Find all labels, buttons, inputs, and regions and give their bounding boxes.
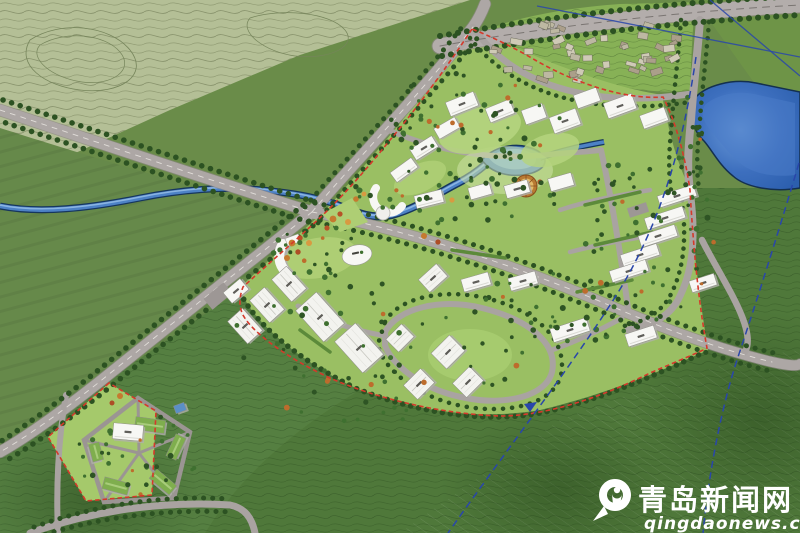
tree-dot <box>600 204 605 209</box>
tree-dot <box>326 290 332 296</box>
tree-dot <box>607 163 611 167</box>
tree-dot <box>360 251 363 254</box>
tree-dot <box>439 217 444 222</box>
tree-dot <box>121 454 125 458</box>
tree-dot <box>284 243 288 247</box>
village-house <box>603 61 610 68</box>
tree-dot <box>469 176 473 180</box>
tree-dot <box>369 382 374 387</box>
tree-dot <box>307 269 313 275</box>
tree-dot <box>688 144 693 149</box>
tree-dot <box>288 309 294 315</box>
tree-dot <box>549 325 553 329</box>
tree-dot <box>602 209 607 214</box>
tree-dot <box>505 95 510 100</box>
tree-dot <box>514 108 519 113</box>
tree-dot <box>534 305 538 309</box>
tree-dot <box>667 299 672 304</box>
tree-dot <box>459 123 464 128</box>
tree-dot <box>380 374 385 379</box>
tree-dot <box>686 204 690 208</box>
tree-dot <box>293 366 298 371</box>
tree-dot <box>595 218 599 222</box>
tree-dot <box>324 321 329 326</box>
tree-dot <box>643 270 646 273</box>
tree-dot <box>705 198 709 202</box>
tree-dot <box>401 194 404 197</box>
tree-dot <box>396 330 402 336</box>
tree-dot <box>363 400 368 405</box>
tree-dot <box>369 291 374 296</box>
tree-dot <box>582 288 588 294</box>
tree-dot <box>490 383 494 387</box>
tree-dot <box>394 122 399 127</box>
tree-dot <box>633 293 637 297</box>
tree-dot <box>349 237 353 241</box>
tree-dot <box>362 344 366 348</box>
tree-dot <box>620 200 624 204</box>
tree-dot <box>480 341 484 345</box>
tree-dot <box>530 327 536 333</box>
tree-dot <box>275 341 280 346</box>
tree-dot <box>698 138 702 142</box>
tree-dot <box>430 144 434 148</box>
tree-dot <box>654 317 658 321</box>
tree-dot <box>615 162 621 168</box>
tree-dot <box>494 181 500 187</box>
tree-dot <box>520 185 526 191</box>
tree-dot <box>592 249 597 254</box>
tree-dot <box>494 155 499 160</box>
tree-dot <box>485 217 491 223</box>
tree-dot <box>424 170 428 174</box>
tree-dot <box>529 283 532 286</box>
tree-dot <box>600 247 604 251</box>
tree-dot <box>595 188 599 192</box>
tree-dot <box>417 197 422 202</box>
tree-dot <box>599 232 604 237</box>
tree-dot <box>303 306 309 312</box>
tree-dot <box>584 315 590 321</box>
tree-dot <box>593 337 599 343</box>
tree-dot <box>509 100 513 104</box>
tree-dot <box>461 92 466 97</box>
tree-dot <box>558 116 562 120</box>
tree-dot <box>679 165 684 170</box>
tree-dot <box>368 193 373 198</box>
tree-dot <box>533 335 537 339</box>
tree-dot <box>634 323 639 328</box>
tree-dot <box>501 295 505 299</box>
tree-dot <box>106 461 111 466</box>
tree-dot <box>508 318 514 324</box>
tree-dot <box>697 165 702 170</box>
tree-dot <box>479 109 483 113</box>
tree-dot <box>647 167 652 172</box>
tree-dot <box>565 339 570 344</box>
tree-dot <box>503 201 508 206</box>
tree-dot <box>348 284 354 290</box>
tree-dot <box>447 171 452 176</box>
tree-dot <box>154 464 159 469</box>
tree-dot <box>387 197 392 202</box>
tree-dot <box>435 220 440 225</box>
tree-dot <box>483 181 488 186</box>
tree-dot <box>339 248 343 252</box>
tree-dot <box>297 240 302 245</box>
tree-dot <box>453 216 458 221</box>
tree-dot <box>326 267 332 273</box>
tree-dot <box>512 177 518 183</box>
tree-dot <box>325 252 329 256</box>
tree-dot <box>346 376 351 381</box>
tree-dot <box>465 195 469 199</box>
tree-dot <box>437 183 442 188</box>
tree-dot <box>321 236 325 240</box>
tree-dot <box>338 311 343 316</box>
tree-dot <box>436 125 440 129</box>
tree-dot <box>522 135 528 141</box>
watermark-cn: 青岛新闻网 <box>638 483 793 517</box>
tree-dot <box>538 104 542 108</box>
tree-dot <box>342 419 347 424</box>
tree-dot <box>383 380 388 385</box>
tree-dot <box>299 312 305 318</box>
tree-dot <box>473 145 478 150</box>
tree-dot <box>322 274 328 280</box>
tree-dot <box>489 176 495 182</box>
tree-dot <box>131 469 134 472</box>
tree-dot <box>612 202 617 207</box>
tree-dot <box>508 282 511 285</box>
tree-dot <box>506 126 509 129</box>
tree-dot <box>694 226 700 232</box>
tree-dot <box>322 368 326 372</box>
tree-dot <box>570 323 574 327</box>
tree-dot <box>172 424 176 428</box>
tree-dot <box>507 151 512 156</box>
tree-dot <box>358 195 362 199</box>
tree-dot <box>81 455 85 459</box>
tree-dot <box>78 442 81 445</box>
tree-dot <box>692 185 696 189</box>
masterplan-canvas: 青岛新闻网 qingdaonews.com <box>0 0 800 533</box>
tree-dot <box>413 140 419 146</box>
tree-dot <box>665 189 671 195</box>
tree-dot <box>504 349 508 353</box>
tree-dot <box>393 370 397 374</box>
tree-dot <box>427 119 432 124</box>
tree-dot <box>633 220 639 226</box>
tree-dot <box>677 156 682 161</box>
tree-dot <box>164 478 168 482</box>
tree-dot <box>468 163 472 167</box>
tree-dot <box>500 147 506 153</box>
tree-dot <box>272 304 276 308</box>
tree-dot <box>271 250 277 256</box>
tree-dot <box>651 281 655 285</box>
tree-dot <box>107 452 111 456</box>
tree-dot <box>531 141 537 147</box>
tree-dot <box>539 180 544 185</box>
tree-dot <box>90 437 95 442</box>
tree-dot <box>90 473 96 479</box>
tree-dot <box>424 195 430 201</box>
tree-dot <box>418 117 423 122</box>
tree-dot <box>698 170 702 174</box>
tree-dot <box>409 146 413 150</box>
tree-dot <box>394 188 398 192</box>
tree-dot <box>381 312 386 317</box>
tree-dot <box>107 428 113 434</box>
tree-dot <box>634 230 639 235</box>
tree-dot <box>493 199 497 203</box>
masterplan-rendering: 青岛新闻网 qingdaonews.com <box>0 0 800 533</box>
village-house <box>504 67 513 73</box>
tree-dot <box>485 165 489 169</box>
tree-dot <box>631 172 636 177</box>
tree-dot <box>551 315 554 318</box>
tree-dot <box>472 309 477 314</box>
tree-dot <box>405 409 409 413</box>
tree-dot <box>552 202 556 206</box>
tree-dot <box>340 241 344 245</box>
tree-dot <box>517 154 523 160</box>
tree-dot <box>552 272 556 276</box>
tree-dot <box>408 126 412 130</box>
tree-dot <box>484 297 489 302</box>
tree-dot <box>477 157 483 163</box>
tree-dot <box>83 475 86 478</box>
tree-dot <box>399 137 405 143</box>
tree-dot <box>560 305 566 311</box>
village-house <box>663 44 675 52</box>
tree-dot <box>334 226 339 231</box>
tree-dot <box>421 322 424 325</box>
tree-dot <box>628 176 632 180</box>
tree-dot <box>417 208 422 213</box>
tree-dot <box>455 93 458 96</box>
tree-dot <box>235 323 240 328</box>
tree-dot <box>324 262 328 266</box>
tree-dot <box>514 84 517 87</box>
tree-dot <box>303 233 308 238</box>
tree-dot <box>125 482 130 487</box>
tree-dot <box>241 355 246 360</box>
tree-dot <box>469 365 472 368</box>
tree-dot <box>553 320 556 323</box>
tree-dot <box>462 74 466 78</box>
village-house <box>524 48 533 54</box>
tree-dot <box>379 320 384 325</box>
tree-dot <box>679 305 682 308</box>
tree-dot <box>284 405 290 411</box>
tree-dot <box>597 178 600 181</box>
tree-dot <box>454 176 459 181</box>
tree-dot <box>528 311 532 315</box>
tree-dot <box>100 451 104 455</box>
tree-dot <box>503 154 507 158</box>
tree-dot <box>552 192 557 197</box>
tree-dot <box>397 362 402 367</box>
tree-dot <box>168 453 174 459</box>
tree-dot <box>401 417 405 421</box>
tree-dot <box>612 304 617 309</box>
tree-dot <box>494 281 500 287</box>
tree-dot <box>372 301 376 305</box>
tree-dot <box>700 131 704 135</box>
tree-dot <box>538 143 542 147</box>
tree-dot <box>582 323 586 327</box>
tree-dot <box>613 180 616 183</box>
tree-dot <box>604 333 607 336</box>
tree-dot <box>520 351 524 355</box>
tree-dot <box>598 280 604 286</box>
tree-dot <box>510 214 514 218</box>
tree-dot <box>595 238 599 242</box>
tree-dot <box>683 182 688 187</box>
tree-dot <box>498 83 503 88</box>
tree-dot <box>401 130 406 135</box>
tree-dot <box>482 102 488 108</box>
tree-dot <box>588 279 593 284</box>
tree-dot <box>498 172 501 175</box>
tree-dot <box>192 466 196 470</box>
tree-dot <box>672 191 677 196</box>
tree-dot <box>276 237 282 243</box>
tree-dot <box>591 295 596 300</box>
tree-dot <box>356 418 360 422</box>
tree-dot <box>421 380 426 385</box>
tree-dot <box>491 113 496 118</box>
tree-dot <box>652 265 656 269</box>
tree-dot <box>622 329 627 334</box>
tree-dot <box>300 410 304 414</box>
tree-dot <box>292 271 296 275</box>
tree-dot <box>529 320 534 325</box>
tree-dot <box>158 415 163 420</box>
village-house <box>647 58 657 63</box>
tree-dot <box>374 374 378 378</box>
tree-dot <box>632 185 636 189</box>
tree-dot <box>514 363 520 369</box>
tree-dot <box>186 433 190 437</box>
tree-dot <box>288 250 292 254</box>
tree-dot <box>691 125 696 130</box>
tree-dot <box>144 463 149 468</box>
tree-dot <box>489 130 493 134</box>
tree-dot <box>444 316 447 319</box>
village-house <box>583 55 592 61</box>
tree-dot <box>626 233 629 236</box>
tree-dot <box>635 206 639 210</box>
tree-dot <box>482 381 485 384</box>
tree-dot <box>604 282 609 287</box>
tree-dot <box>407 170 410 173</box>
tree-dot <box>510 335 514 339</box>
tree-dot <box>450 121 455 126</box>
tree-dot <box>692 170 695 173</box>
tree-dot <box>104 442 108 446</box>
tree-dot <box>613 313 616 316</box>
tree-dot <box>302 258 307 263</box>
village-house <box>637 32 648 40</box>
tree-dot <box>389 118 394 123</box>
tree-dot <box>359 188 363 192</box>
tree-dot <box>711 240 716 245</box>
tree-dot <box>392 406 396 410</box>
tree-dot <box>510 298 514 302</box>
tree-dot <box>475 138 479 142</box>
tree-dot <box>592 181 597 186</box>
tree-dot <box>436 148 441 153</box>
tree-dot <box>394 397 398 401</box>
tree-dot <box>302 374 305 377</box>
tree-dot <box>554 325 560 331</box>
tree-dot <box>509 157 513 161</box>
watermark-en: qingdaonews.com <box>644 514 800 533</box>
tree-dot <box>160 439 165 444</box>
village-house <box>600 35 607 42</box>
tree-dot <box>665 267 670 272</box>
tree-dot <box>380 282 385 287</box>
tree-dot <box>705 215 711 221</box>
tree-dot <box>583 282 586 285</box>
village-house <box>489 49 497 54</box>
tree-dot <box>469 202 475 208</box>
tree-dot <box>661 283 665 287</box>
tree-dot <box>454 71 459 76</box>
tree-dot <box>382 411 386 415</box>
tree-dot <box>689 228 692 231</box>
tree-dot <box>417 99 421 103</box>
tree-dot <box>380 205 385 210</box>
tree-dot <box>409 346 412 349</box>
tree-dot <box>498 138 502 142</box>
tree-dot <box>388 355 393 360</box>
tree-dot <box>659 219 663 223</box>
tree-dot <box>286 233 289 236</box>
village-house <box>550 28 559 33</box>
tree-dot <box>502 377 507 382</box>
tree-dot <box>390 205 395 210</box>
tree-dot <box>139 438 142 441</box>
tree-dot <box>462 346 466 350</box>
tree-dot <box>312 390 317 395</box>
tree-dot <box>144 482 149 487</box>
tree-dot <box>429 104 433 108</box>
tree-dot <box>484 202 489 207</box>
tree-dot <box>583 241 589 247</box>
tree-dot <box>639 289 643 293</box>
tree-dot <box>313 263 317 267</box>
tree-dot <box>700 282 703 285</box>
tree-dot <box>409 84 414 89</box>
tree-dot <box>333 273 337 277</box>
